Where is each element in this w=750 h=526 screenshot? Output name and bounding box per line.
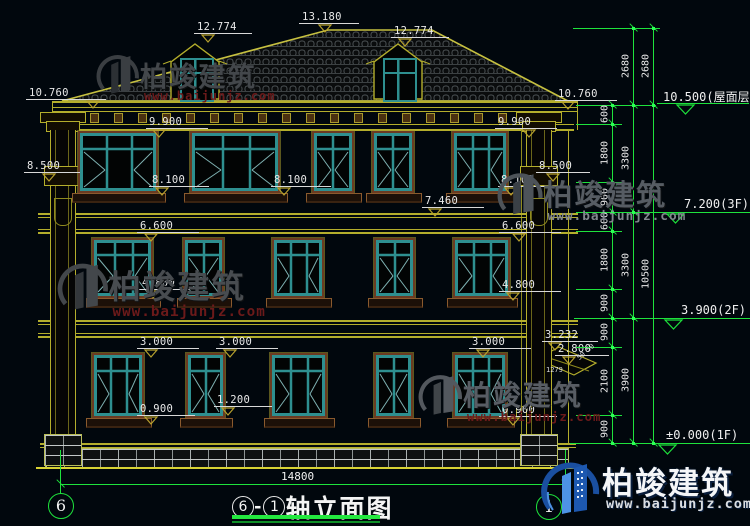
watermark-url: www.baijunjz.com — [113, 304, 266, 320]
title-underline — [232, 515, 380, 519]
plinth-top — [40, 443, 576, 445]
eave-line — [52, 111, 578, 112]
dentil-block — [474, 113, 483, 123]
dentil-block — [114, 113, 123, 123]
dim-node — [611, 123, 614, 126]
dim-node — [652, 104, 655, 107]
level-triangle — [155, 187, 170, 197]
floor-band — [38, 229, 578, 230]
window-glazing — [455, 240, 508, 296]
small-dim-value: 1279 — [546, 366, 563, 374]
window-glazing — [192, 133, 278, 191]
dim-extension — [60, 450, 61, 494]
level-text: 9.900 — [149, 116, 182, 128]
level-triangle — [398, 38, 413, 48]
elevation-label: ±0.000(1F) — [666, 428, 738, 442]
level-text: 13.180 — [302, 11, 342, 23]
dim-node — [632, 442, 635, 445]
level-triangle — [221, 407, 236, 417]
window-glazing — [376, 240, 413, 296]
watermark-url: www.baijunjz.com — [467, 410, 601, 424]
level-text: 8.100 — [152, 174, 185, 186]
level-text: 6.600 — [140, 220, 173, 232]
window — [312, 131, 354, 193]
level-text: 7.460 — [425, 195, 458, 207]
window-glazing — [314, 133, 352, 191]
floor-band — [38, 320, 578, 322]
level-text: 8.500 — [27, 160, 60, 172]
window-sill — [266, 298, 332, 308]
watermark-icon — [497, 170, 545, 223]
dim-value: 3300 — [621, 146, 632, 170]
level-triangle — [201, 34, 216, 44]
floor-band — [38, 232, 578, 234]
dentil-block — [426, 113, 435, 123]
drawing-title: 6-1轴立面图 — [232, 489, 394, 525]
dormer-eave-flare — [366, 61, 374, 64]
level-text: 10.760 — [29, 87, 69, 99]
frieze-line — [56, 124, 574, 125]
level-triangle — [144, 349, 159, 359]
window-sill — [368, 298, 423, 308]
dentil-block — [186, 113, 195, 123]
elevation-triangle — [658, 444, 678, 456]
window-glazing — [376, 355, 411, 416]
dim-value: 3300 — [621, 253, 632, 277]
watermark-brand: 柏竣建筑 — [463, 374, 583, 414]
level-triangle — [152, 129, 167, 139]
dim-node — [611, 317, 614, 320]
dim-value: 2680 — [641, 54, 652, 78]
dentil-block — [90, 113, 99, 123]
elevation-label: 3.900(2F) — [681, 303, 746, 317]
window — [270, 353, 327, 418]
overall-dim-text: 14800 — [281, 470, 314, 483]
ground-line — [36, 467, 580, 469]
dentil-block — [258, 113, 267, 123]
floor-band — [38, 333, 578, 334]
window — [272, 238, 324, 298]
dim-node — [632, 27, 635, 30]
watermark-brand: 柏竣建筑 — [109, 262, 246, 308]
dim-value: 900 — [600, 323, 611, 341]
dim-value: 900 — [600, 294, 611, 312]
level-text: 1.200 — [217, 394, 250, 406]
dim-line — [653, 28, 654, 443]
dentil-block — [378, 113, 387, 123]
level-text: 4.800 — [502, 279, 535, 291]
elevation-triangle — [676, 104, 696, 116]
level-triangle — [144, 416, 159, 426]
dim-node — [632, 104, 635, 107]
dim-node — [652, 442, 655, 445]
level-text: 3.000 — [472, 336, 505, 348]
logo-icon — [540, 458, 602, 520]
dim-extension-line — [570, 443, 650, 444]
dentil-block — [210, 113, 219, 123]
level-text: 9.900 — [498, 116, 531, 128]
window-glazing — [274, 240, 322, 296]
dim-node — [611, 414, 614, 417]
window-sill — [86, 418, 152, 428]
dim-node — [611, 288, 614, 291]
dim-extension-line — [576, 105, 656, 106]
watermark-brand: 柏竣建筑 — [544, 172, 668, 214]
level-triangle — [522, 129, 537, 139]
watermark-url: www.baijunjz.com — [548, 209, 687, 224]
floor-band — [38, 324, 578, 325]
dim-node — [611, 230, 614, 233]
window-sill — [180, 418, 233, 428]
window-glazing — [80, 133, 156, 191]
dim-value: 10500 — [641, 259, 652, 289]
level-triangle — [223, 349, 238, 359]
window — [78, 131, 158, 193]
dentil-block — [330, 113, 339, 123]
dim-node — [611, 346, 614, 349]
dim-value: 2680 — [621, 54, 632, 78]
stone-plinth — [45, 448, 569, 469]
level-text: 3.000 — [140, 336, 173, 348]
window-sill — [306, 193, 362, 203]
watermark-url: www.baijunjz.com — [144, 89, 276, 103]
level-text: 8.100 — [274, 174, 307, 186]
dentil-block — [282, 113, 291, 123]
window — [190, 131, 280, 193]
eave-line — [52, 107, 578, 108]
window-glazing — [94, 355, 142, 416]
level-triangle — [561, 101, 576, 111]
dim-value: 1800 — [600, 248, 611, 272]
watermark-icon — [57, 260, 110, 319]
window-sill — [366, 193, 422, 203]
window — [374, 238, 415, 298]
level-triangle — [277, 187, 292, 197]
logo-url-text: www.baijunjz.com — [606, 496, 750, 512]
dim-node — [611, 104, 614, 107]
window-sill — [72, 193, 166, 203]
level-triangle — [562, 356, 577, 366]
dentil-block — [306, 113, 315, 123]
window-sill — [368, 418, 421, 428]
window-sill — [184, 193, 288, 203]
window — [186, 353, 225, 418]
watermark-brand: 柏竣建筑 — [140, 54, 257, 94]
dim-node — [652, 27, 655, 30]
level-triangle — [476, 349, 491, 359]
pilaster-base — [44, 434, 82, 466]
level-text: 12.774 — [394, 25, 434, 37]
dormer-eave-flare — [422, 61, 430, 64]
level-text: 3.232 — [545, 329, 578, 341]
level-triangle — [506, 292, 521, 302]
window-sill — [264, 418, 335, 428]
dim-line — [612, 105, 613, 443]
window — [374, 353, 413, 418]
dim-value: 1800 — [600, 141, 611, 165]
level-triangle — [428, 208, 443, 218]
dim-node — [611, 442, 614, 445]
level-triangle — [512, 233, 527, 243]
axis-bubble-6: 6 — [48, 493, 74, 519]
dim-value: 2100 — [600, 369, 611, 393]
level-triangle — [144, 233, 159, 243]
window-glazing — [272, 355, 325, 416]
dentil-block — [234, 113, 243, 123]
dim-node — [632, 317, 635, 320]
level-triangle — [318, 24, 333, 34]
dim-value: 600 — [600, 105, 611, 123]
dentil-block — [138, 113, 147, 123]
window — [372, 131, 414, 193]
dim-value: 3900 — [621, 368, 632, 392]
pilaster-ornament — [54, 198, 72, 226]
dentil-block — [354, 113, 363, 123]
window — [92, 353, 144, 418]
dormer-window — [383, 58, 417, 102]
window-glazing — [374, 133, 412, 191]
overall-dim-line — [60, 484, 565, 485]
dim-extension-line — [573, 28, 660, 29]
dim-line — [633, 28, 634, 443]
elevation-triangle — [664, 319, 684, 331]
watermark-icon — [96, 52, 141, 102]
dentil-block — [450, 113, 459, 123]
level-text: 10.760 — [558, 88, 598, 100]
title-underline-2 — [232, 521, 380, 523]
cad-elevation-drawing: 13.18012.77412.77410.76010.7609.9009.900… — [0, 0, 750, 526]
dentil-block — [402, 113, 411, 123]
level-text: 3.000 — [219, 336, 252, 348]
level-text: 12.774 — [197, 21, 237, 33]
level-underline — [499, 232, 561, 233]
watermark-icon — [418, 372, 464, 423]
level-text: 0.900 — [140, 403, 173, 415]
level-triangle — [42, 173, 57, 183]
elevation-underline — [657, 103, 749, 104]
elevation-label: 7.200(3F) — [684, 197, 749, 211]
